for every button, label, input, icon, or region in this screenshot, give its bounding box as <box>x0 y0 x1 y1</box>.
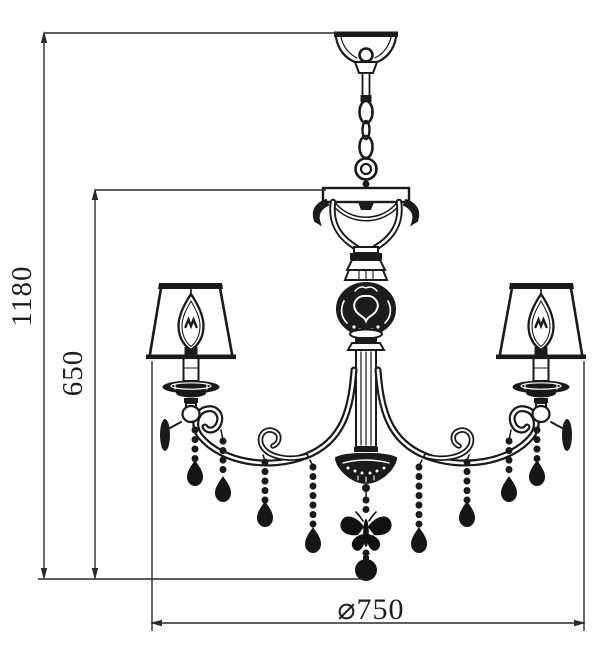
bottom-ball <box>355 559 377 581</box>
center-pendant <box>340 492 391 581</box>
teardrop-pendant <box>187 460 203 486</box>
fluted-column <box>354 350 378 452</box>
candle-bulb <box>179 289 204 381</box>
butterfly-ornament <box>340 512 391 551</box>
chain-ring <box>356 159 377 180</box>
diameter-label: ⌀750 <box>337 593 404 626</box>
body-height-label: 650 <box>57 350 89 397</box>
arm-finial <box>160 419 170 451</box>
overall-height-label: 1180 <box>6 266 38 327</box>
center-bowl <box>336 454 396 492</box>
drawing-canvas: 1180 650 ⌀750 <box>0 0 600 662</box>
ceiling-canopy <box>334 32 398 74</box>
left-arm <box>146 283 354 553</box>
chandelier-technical-drawing: 1180 650 ⌀750 <box>0 0 600 662</box>
right-arm <box>378 283 586 553</box>
ornate-sphere <box>337 247 395 350</box>
bobeche <box>163 381 220 423</box>
suspension-chain <box>356 73 377 188</box>
